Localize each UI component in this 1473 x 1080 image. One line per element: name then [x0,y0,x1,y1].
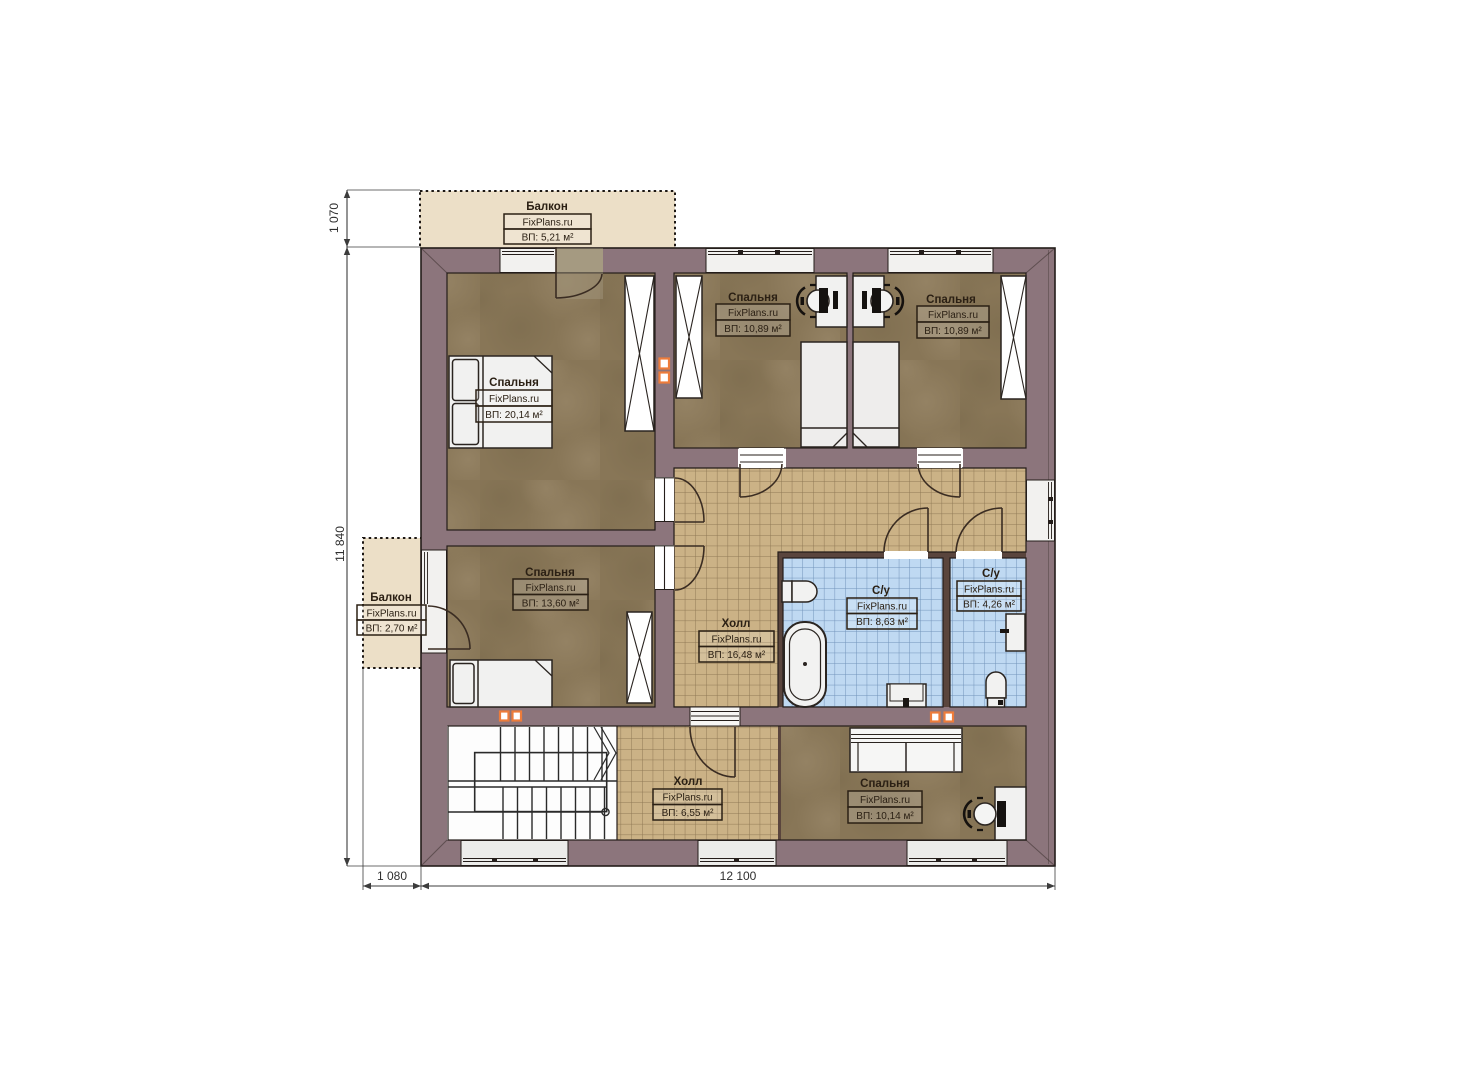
svg-text:FixPlans.ru: FixPlans.ru [964,585,1014,596]
svg-text:FixPlans.ru: FixPlans.ru [728,308,778,319]
svg-text:Холл: Холл [722,618,751,630]
svg-text:С/у: С/у [872,585,891,597]
svg-text:ВП: 6,55 м²: ВП: 6,55 м² [662,808,715,819]
svg-text:ВП: 8,63 м²: ВП: 8,63 м² [856,617,909,628]
svg-text:1 080: 1 080 [377,869,407,883]
svg-text:ВП: 5,21 м²: ВП: 5,21 м² [522,233,575,244]
svg-text:11 840: 11 840 [333,526,347,562]
svg-text:FixPlans.ru: FixPlans.ru [366,609,416,620]
svg-text:ВП: 10,14 м²: ВП: 10,14 м² [856,811,914,822]
svg-text:ВП: 4,26 м²: ВП: 4,26 м² [963,600,1016,611]
svg-text:ВП: 16,48 м²: ВП: 16,48 м² [708,650,766,661]
svg-text:FixPlans.ru: FixPlans.ru [489,394,539,405]
svg-text:FixPlans.ru: FixPlans.ru [662,793,712,804]
svg-text:Балкон: Балкон [526,201,568,213]
svg-text:Холл: Холл [674,776,703,788]
svg-text:Спальня: Спальня [525,567,575,579]
svg-text:FixPlans.ru: FixPlans.ru [860,795,910,806]
svg-text:ВП: 10,89 м²: ВП: 10,89 м² [724,324,782,335]
svg-text:FixPlans.ru: FixPlans.ru [928,310,978,321]
svg-text:Балкон: Балкон [370,592,412,604]
svg-text:ВП: 13,60 м²: ВП: 13,60 м² [522,599,580,610]
svg-text:FixPlans.ru: FixPlans.ru [711,635,761,646]
svg-text:Спальня: Спальня [860,778,910,790]
svg-text:12 100: 12 100 [720,869,757,883]
svg-text:FixPlans.ru: FixPlans.ru [857,602,907,613]
svg-text:ВП: 20,14 м²: ВП: 20,14 м² [485,410,543,421]
svg-text:FixPlans.ru: FixPlans.ru [522,218,572,229]
svg-text:С/у: С/у [982,568,1001,580]
svg-text:Спальня: Спальня [489,377,539,389]
svg-text:ВП: 2,70 м²: ВП: 2,70 м² [366,624,419,635]
svg-text:FixPlans.ru: FixPlans.ru [525,583,575,594]
svg-text:Спальня: Спальня [926,294,976,306]
svg-text:1 070: 1 070 [327,203,341,233]
svg-text:Спальня: Спальня [728,292,778,304]
svg-text:ВП: 10,89 м²: ВП: 10,89 м² [924,326,982,337]
